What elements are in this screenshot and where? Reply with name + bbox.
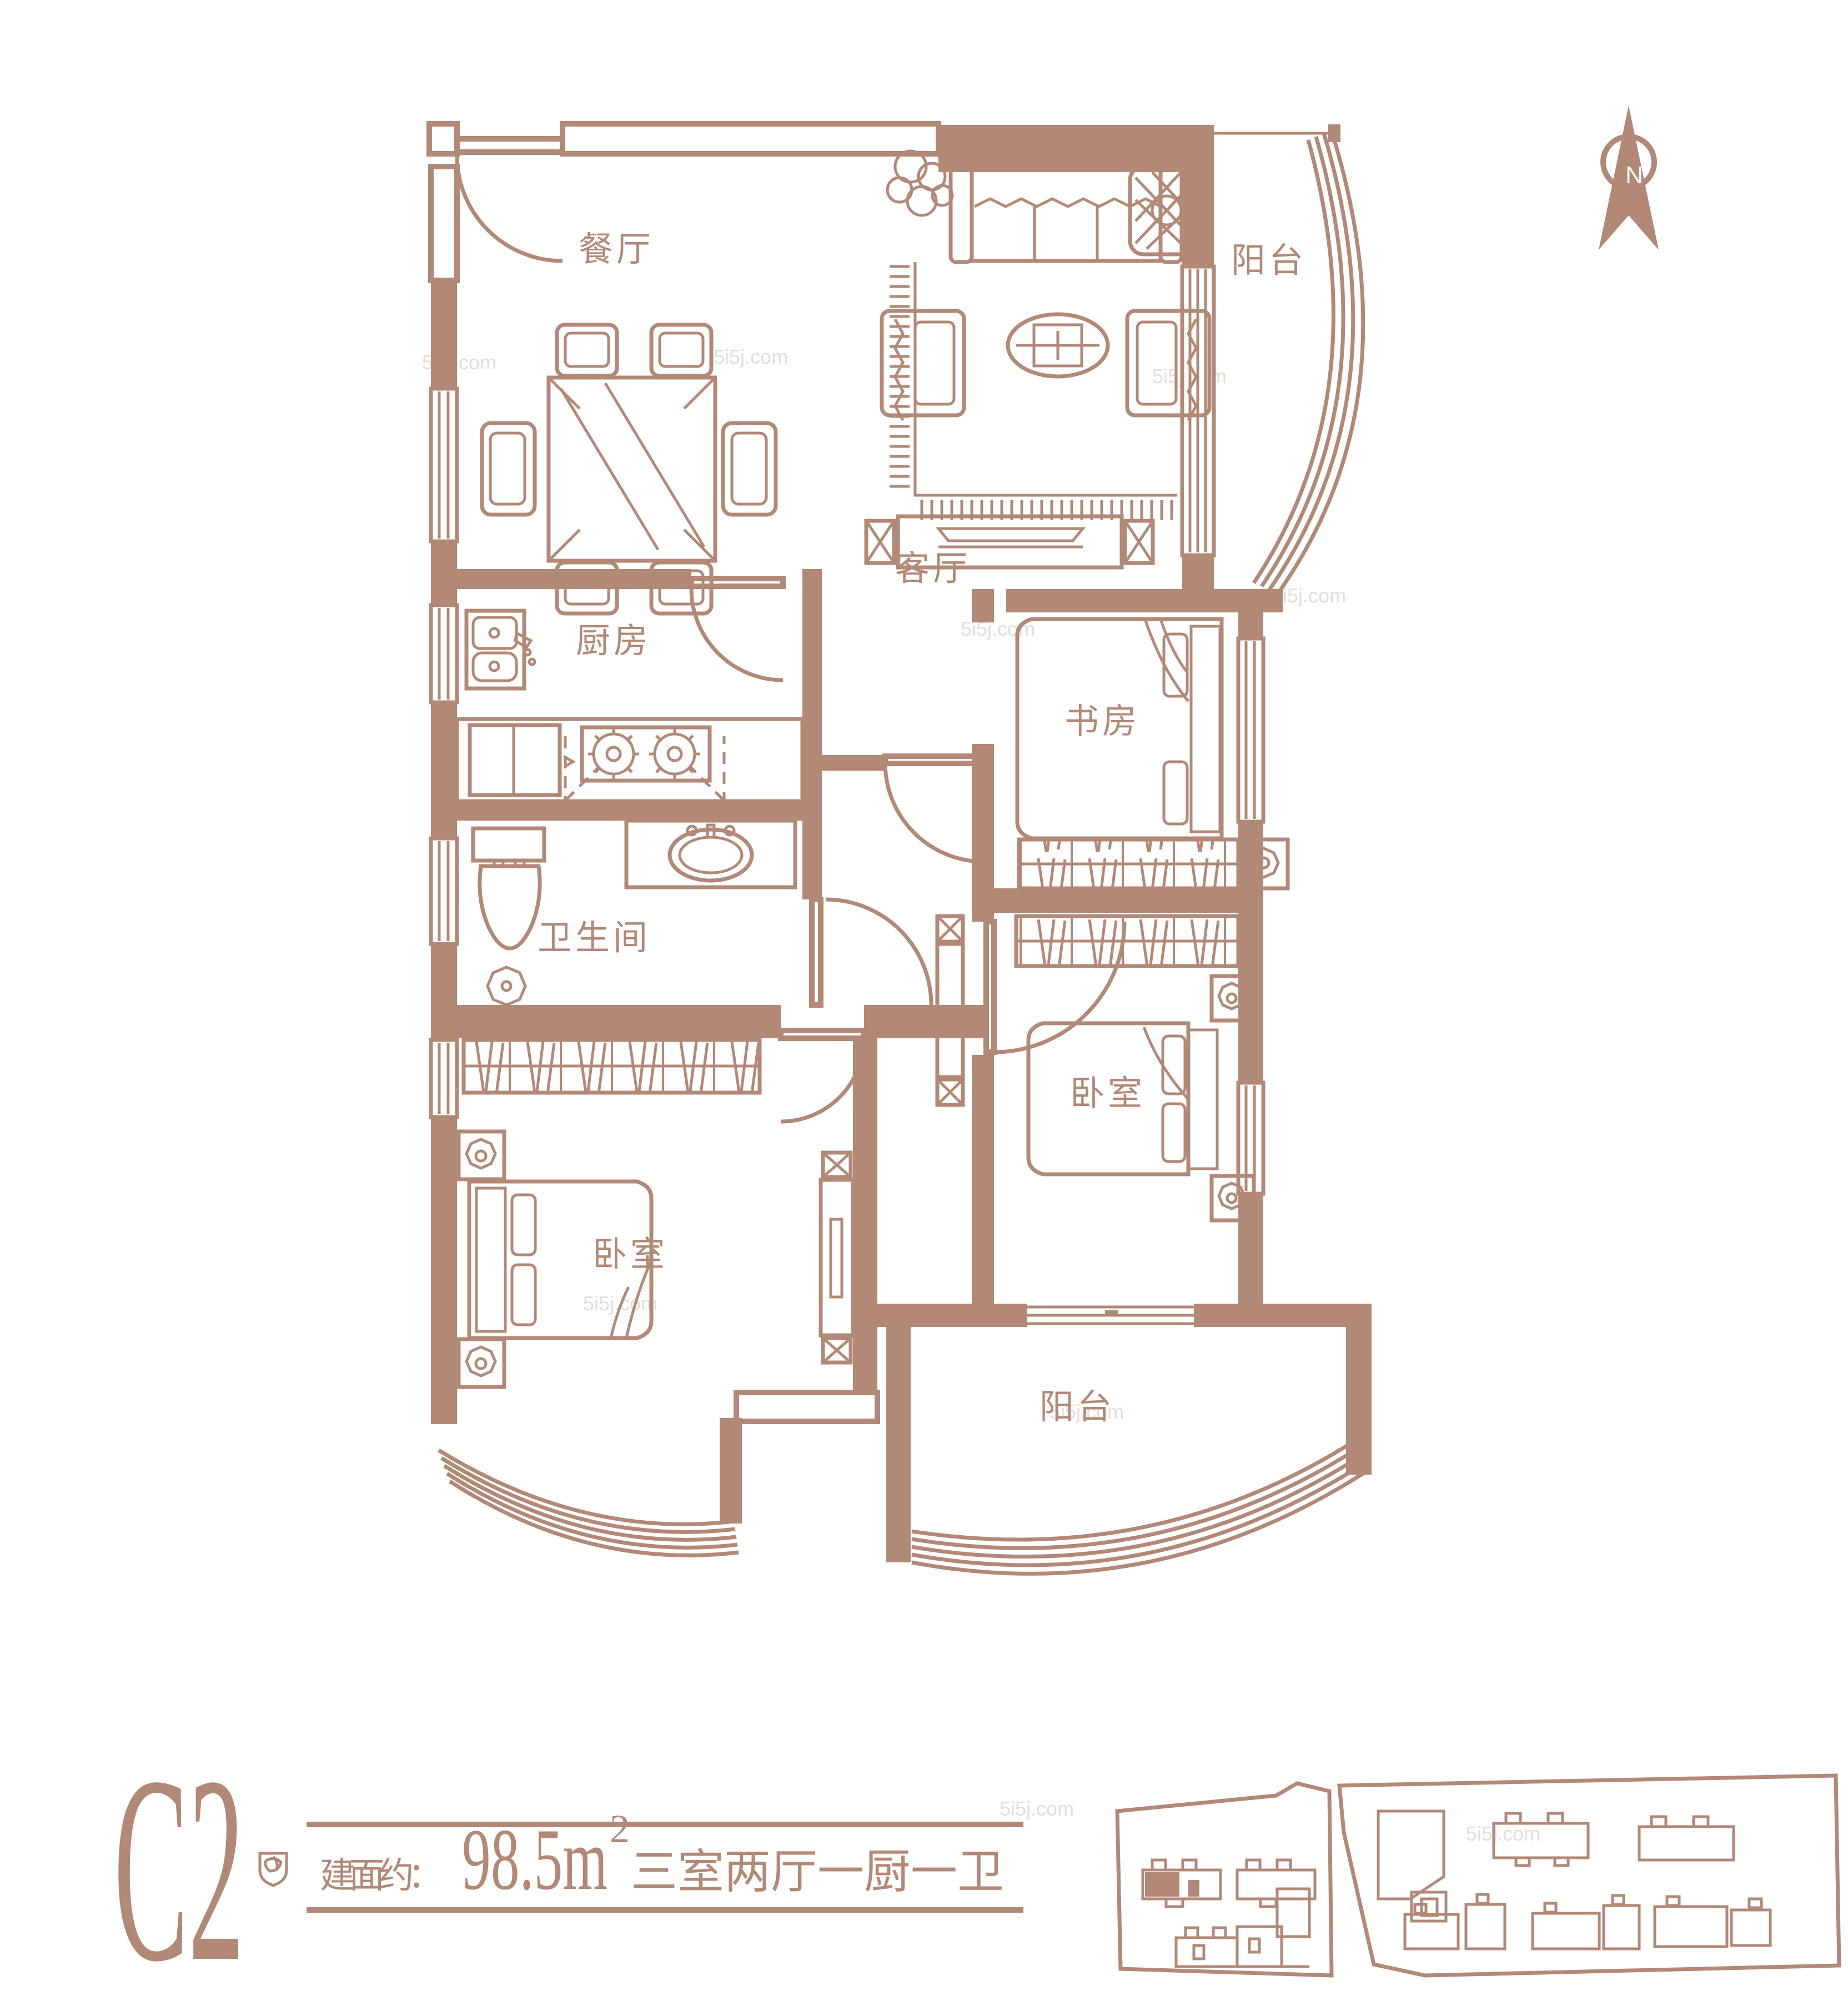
wall [563,124,938,154]
sliding-door-balcony [1027,1307,1194,1324]
kitchen-sink [466,611,535,688]
compass: N [1599,105,1659,250]
wall [1194,1304,1372,1327]
room-label-balcony-top: 阳台 [1231,242,1307,280]
kitchen-door-leaf [691,579,783,586]
window-dining [431,389,457,541]
site-plan-left [1117,1783,1332,1975]
bedroom-left-nightstand [459,1132,504,1179]
wall [877,1304,1027,1327]
layout-description: 三室两厅一厨一卫 [631,1847,1004,1898]
wall [431,1005,781,1038]
bedroom-left-door-leaf [781,1030,864,1038]
window-study [1238,639,1263,822]
shield-leaf-logo-icon [260,1853,287,1886]
wall [429,124,457,154]
duct-x-box [1125,521,1153,563]
wall [972,1055,994,1304]
bedroom-left-door-arc [781,1038,864,1122]
window-bedroom-left [431,1040,457,1117]
room-label-bedroom-right: 卧室 [1070,1074,1146,1113]
site-plan-building [1655,1897,1770,1947]
wall [1238,612,1263,639]
kitchen-counter-stove [457,719,802,801]
window-kitchen [431,605,457,702]
wall [1238,1194,1263,1304]
wall [972,771,994,922]
room-label-study: 书房 [1064,702,1140,741]
kitchen-door-arc [691,589,783,680]
bedroom-right-wardrobe [1016,916,1238,966]
wall [431,167,457,280]
site-plan-building [1378,1811,1446,1921]
hall-door-arc [885,763,984,862]
duct-x-box [866,521,894,563]
bath-door-arc [826,899,931,1005]
room-label-bedroom-left: 卧室 [592,1235,668,1274]
rug [890,262,1177,520]
bedroom-left-dresser [821,1153,853,1363]
wall [1006,589,1283,612]
wall [431,1117,457,1424]
floor-plan-canvas: 5i5j.com 5i5j.com 5i5j.com 5i5j.com 5i5j… [0,0,1848,2011]
area-label: 建面约： [320,1856,443,1896]
room-label-dining: 餐厅 [579,230,654,269]
area-value: 98.5m [462,1811,607,1908]
wall [864,1005,994,1038]
unit-name: C2 [114,1721,244,2011]
wall [802,569,822,811]
site-plan-building [1533,1896,1639,1949]
bedroom-left-wardrobe [464,1040,760,1093]
entry-door-arc [457,155,563,261]
wall [1182,555,1214,589]
wall [822,755,885,771]
bedroom-left-nightstand [459,1339,504,1387]
site-plan-building [1143,1860,1221,1907]
wall [994,888,1238,913]
balcony-bottom-curve [912,1470,1368,1573]
entry-door-leaf [457,139,563,152]
wall [720,1418,742,1524]
coffee-table [1008,314,1108,376]
bedroom-right-door-leaf [986,922,994,1052]
wall [886,1327,911,1562]
watermark-text: 5i5j.com [714,345,788,368]
wall [802,811,822,899]
wash-basin [626,821,795,887]
hall-door-leaf [885,756,984,763]
room-label-kitchen: 厨房 [576,622,651,660]
watermark-text: 5i5j.com [1466,1822,1540,1845]
wall [431,280,457,389]
site-plan-building [1639,1817,1734,1860]
wall [972,744,994,771]
site-plan-building [1176,1889,1309,1967]
window-bath [431,838,457,944]
wall [972,589,994,622]
site-plan-right [1339,1776,1839,1975]
toilet [473,828,544,948]
study-wardrobe [1019,839,1238,888]
title-block: C2 建面约： 98.5m 2 三室两厅一厨一卫 [114,1721,1023,2011]
wall [853,1038,877,1392]
watermark-text: 5i5j.com [1000,1797,1074,1820]
compass-north-letter: N [1625,162,1643,189]
room-label-bath: 卫生间 [538,919,651,957]
wall [736,1392,877,1421]
room-label-living: 客厅 [895,550,971,588]
room-label-balcony-bottom: 阳台 [1039,1388,1115,1426]
bath-door-leaf [812,899,821,1005]
area-superscript: 2 [610,1807,630,1851]
